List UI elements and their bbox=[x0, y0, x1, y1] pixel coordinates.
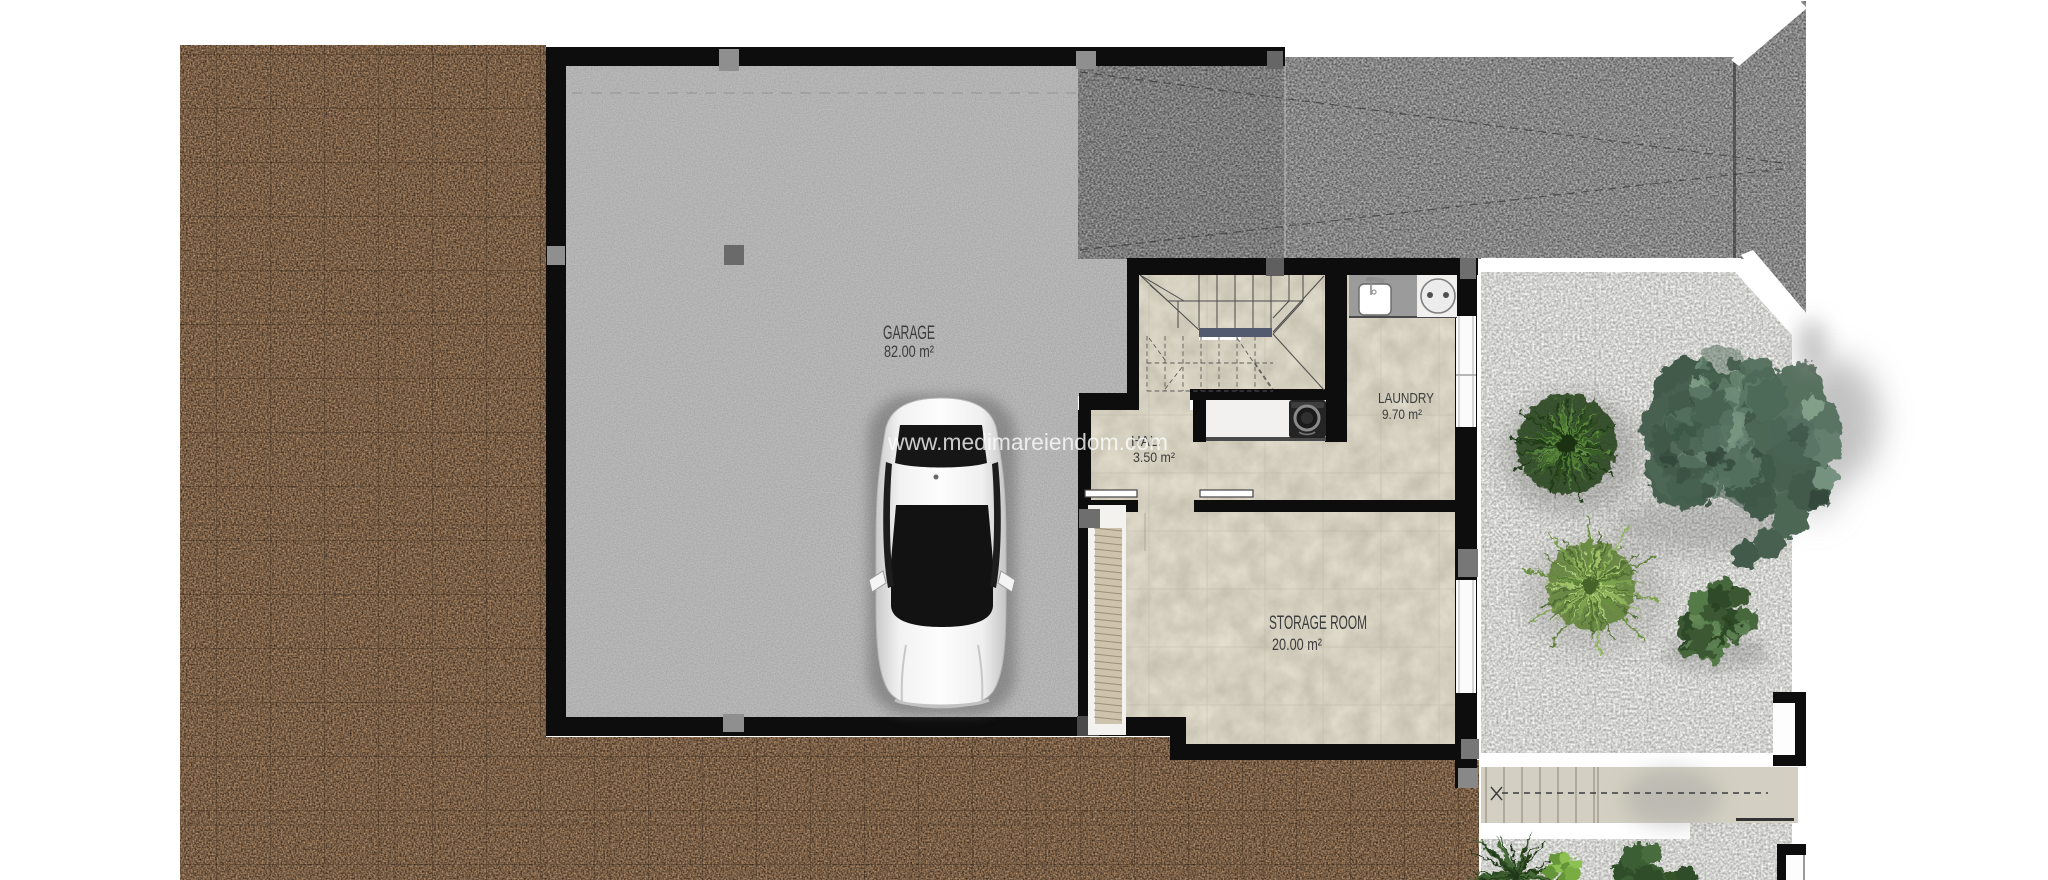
svg-text:LAUNDRY: LAUNDRY bbox=[1378, 390, 1434, 407]
svg-text:www.medimareiendom.com: www.medimareiendom.com bbox=[887, 429, 1168, 455]
svg-text:82.00 m²: 82.00 m² bbox=[884, 342, 934, 361]
svg-text:STORAGE ROOM: STORAGE ROOM bbox=[1269, 613, 1367, 634]
svg-text:9.70 m²: 9.70 m² bbox=[1382, 406, 1422, 422]
svg-text:20.00 m²: 20.00 m² bbox=[1272, 635, 1322, 654]
svg-text:GARAGE: GARAGE bbox=[883, 323, 935, 344]
